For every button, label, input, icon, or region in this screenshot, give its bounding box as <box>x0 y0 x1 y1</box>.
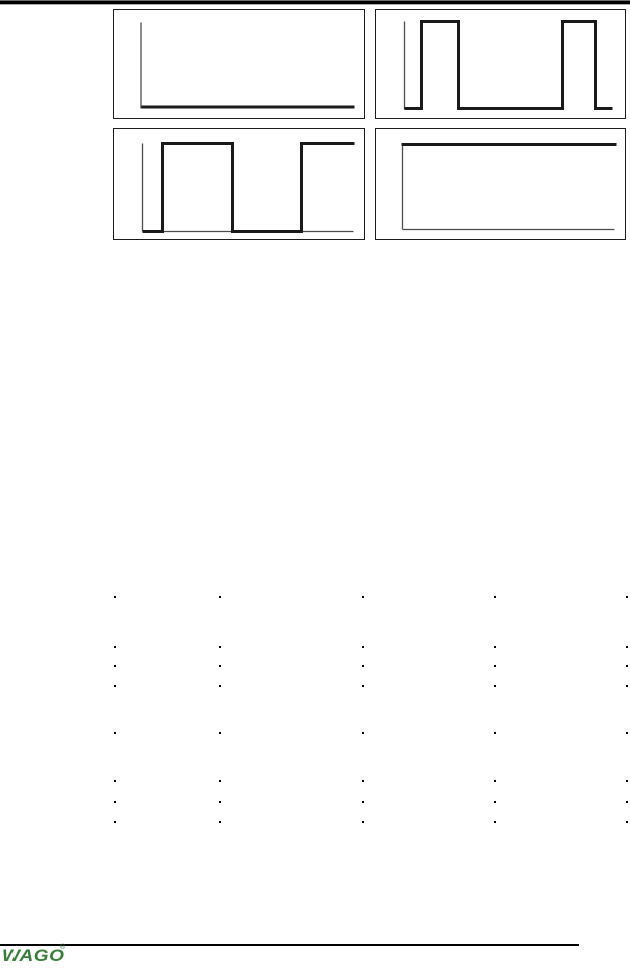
grid-dot <box>494 596 496 598</box>
grid-dot <box>219 732 221 734</box>
registered-trademark-icon: ® <box>60 944 65 951</box>
figure-signal-constant-low <box>113 9 365 119</box>
grid-dot <box>494 665 496 667</box>
grid-dot <box>114 646 116 648</box>
grid-dot <box>219 646 221 648</box>
grid-dot <box>494 821 496 823</box>
grid-dot <box>219 685 221 687</box>
header-rule <box>0 0 630 5</box>
grid-dot <box>494 801 496 803</box>
grid-dot <box>626 780 628 782</box>
grid-dot <box>362 780 364 782</box>
grid-dot <box>626 685 628 687</box>
grid-dot <box>219 665 221 667</box>
grid-dot <box>114 780 116 782</box>
grid-dot <box>626 821 628 823</box>
figure-signal-constant-high <box>375 128 626 240</box>
signal-trace <box>405 22 613 109</box>
grid-dot <box>626 646 628 648</box>
grid-dot <box>114 821 116 823</box>
pulse-train-plot <box>376 10 624 117</box>
square-wave-plot <box>114 129 363 238</box>
grid-dot <box>219 780 221 782</box>
grid-dot <box>626 596 628 598</box>
grid-dot <box>626 665 628 667</box>
figure-pulse-train <box>375 9 626 119</box>
signal-constant-high-plot <box>376 129 624 238</box>
wago-logo: WAGO ® <box>2 947 74 969</box>
grid-dot <box>362 732 364 734</box>
grid-dot <box>114 801 116 803</box>
signal-constant-low-plot <box>114 10 363 117</box>
grid-dot <box>219 596 221 598</box>
grid-dot <box>362 596 364 598</box>
grid-dot <box>494 780 496 782</box>
grid-dot <box>114 685 116 687</box>
grid-dot <box>494 685 496 687</box>
grid-dot <box>362 801 364 803</box>
grid-dot <box>362 665 364 667</box>
grid-dot <box>494 732 496 734</box>
grid-dot <box>494 646 496 648</box>
grid-dot <box>219 821 221 823</box>
footer-rule <box>0 944 579 946</box>
document-page: WAGO ® <box>0 0 630 970</box>
signal-trace <box>143 144 355 232</box>
grid-dot <box>114 732 116 734</box>
grid-dot <box>114 596 116 598</box>
grid-dot <box>362 646 364 648</box>
grid-dot <box>626 732 628 734</box>
grid-dot <box>362 685 364 687</box>
grid-dot <box>362 821 364 823</box>
grid-dot <box>114 665 116 667</box>
grid-dot <box>219 801 221 803</box>
figure-square-wave <box>113 128 365 240</box>
grid-dot <box>626 801 628 803</box>
